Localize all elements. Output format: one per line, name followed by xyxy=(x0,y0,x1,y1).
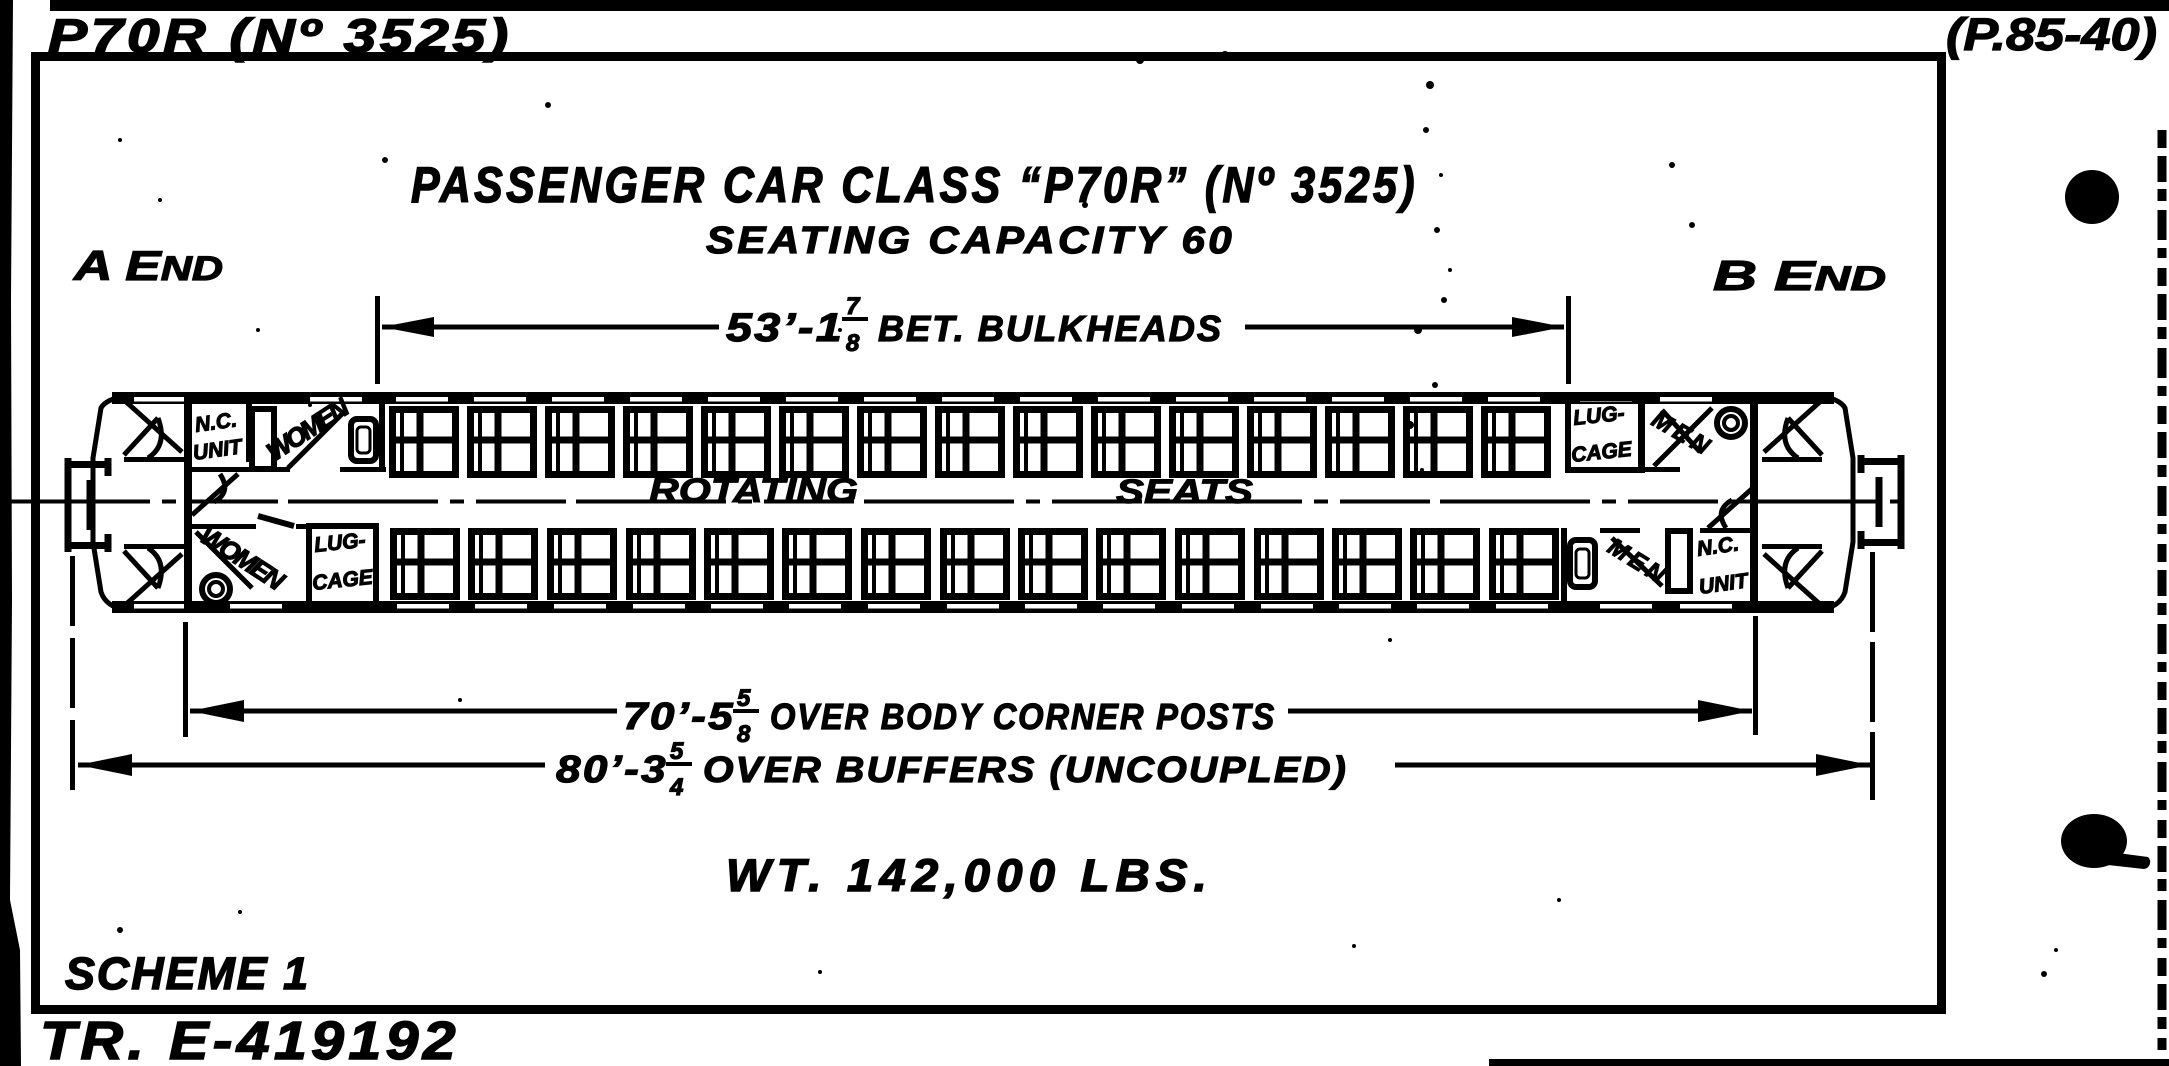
svg-text:8: 8 xyxy=(846,330,860,357)
svg-text:B END: B END xyxy=(1713,252,1886,299)
svg-text:80’-3: 80’-3 xyxy=(556,749,668,791)
svg-text:4: 4 xyxy=(669,774,683,801)
svg-text:A END: A END xyxy=(73,242,223,289)
svg-text:ROTATING: ROTATING xyxy=(649,472,858,510)
svg-text:WT. 142,000 LBS.: WT. 142,000 LBS. xyxy=(726,850,1213,901)
svg-text:TR. E-419192: TR. E-419192 xyxy=(40,1011,460,1066)
svg-text:BET. BULKHEADS: BET. BULKHEADS xyxy=(878,308,1223,349)
svg-text:SEATS: SEATS xyxy=(1116,473,1253,511)
svg-text:70’-5: 70’-5 xyxy=(623,696,735,738)
svg-text:(P.85-40): (P.85-40) xyxy=(1946,9,2157,60)
svg-text:P70R (Nº 3525): P70R (Nº 3525) xyxy=(48,9,512,62)
svg-text:SEATING CAPACITY 60: SEATING CAPACITY 60 xyxy=(706,220,1235,262)
svg-text:PASSENGER CAR CLASS “P70R” (Nº: PASSENGER CAR CLASS “P70R” (Nº 3525) xyxy=(411,157,1418,213)
svg-text:5: 5 xyxy=(670,738,684,765)
svg-text:8: 8 xyxy=(737,721,751,748)
svg-text:OVER BUFFERS (UNCOUPLED): OVER BUFFERS (UNCOUPLED) xyxy=(703,749,1348,790)
svg-text:5: 5 xyxy=(737,685,751,712)
svg-text:SCHEME 1: SCHEME 1 xyxy=(65,948,310,999)
svg-text:7: 7 xyxy=(846,293,861,320)
svg-text:53’-1: 53’-1 xyxy=(726,306,844,350)
svg-text:OVER BODY CORNER POSTS: OVER BODY CORNER POSTS xyxy=(770,696,1276,737)
